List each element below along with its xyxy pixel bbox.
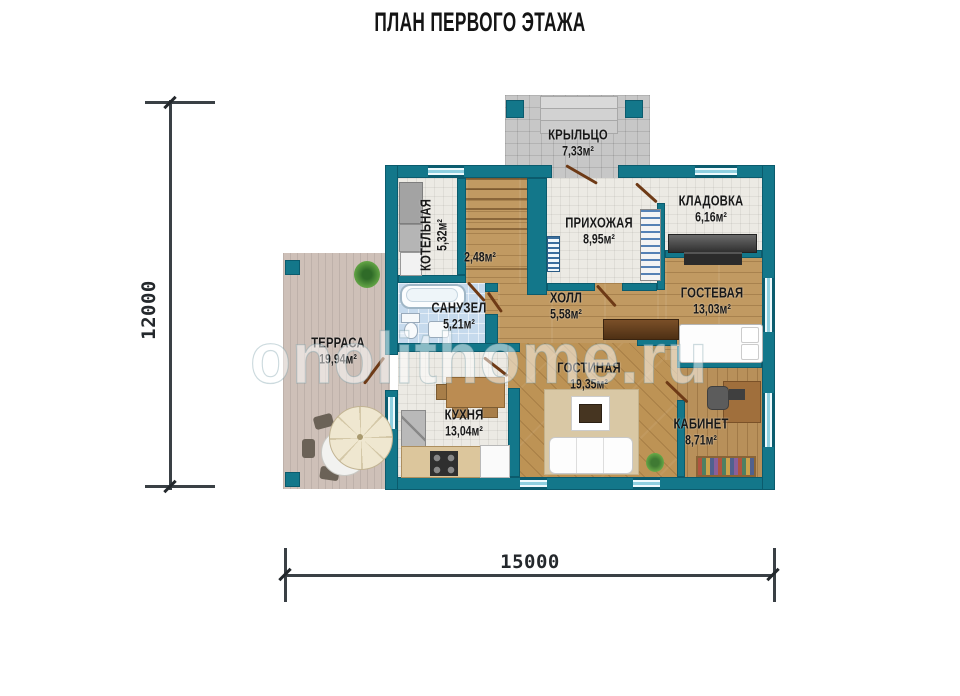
porch-pillar-right	[625, 100, 643, 118]
room-name: КАБИНЕТ	[673, 416, 728, 432]
dim-line-vertical	[169, 100, 172, 490]
room-name: КРЫЛЬЦО	[548, 127, 608, 143]
wall-top-left	[385, 165, 552, 178]
office-laptop	[729, 389, 745, 400]
kitchen-stove	[430, 451, 458, 476]
wall-boiler-bathroom	[398, 275, 466, 283]
room-name: КУХНЯ	[445, 407, 484, 423]
watermark-text: onolithome.ru	[250, 318, 708, 400]
wall-bathroom-a	[485, 283, 498, 292]
stair-landing-edge	[466, 268, 527, 270]
stair-treads	[466, 178, 527, 236]
kitchen-fridge	[401, 410, 426, 447]
guest-tv-stand	[684, 252, 742, 265]
window-living-right	[633, 478, 660, 489]
office-chair	[707, 386, 729, 410]
room-label-hall: ХОЛЛ 5,58м²	[550, 290, 582, 321]
terrace-chair	[302, 439, 315, 458]
window-storage	[695, 166, 737, 177]
window-office	[763, 393, 774, 447]
office-bookshelf	[696, 456, 756, 477]
porch-pillar-left	[506, 100, 524, 118]
room-area: 8,95м²	[565, 232, 632, 247]
room-name: САНУЗЕЛ	[432, 300, 487, 316]
terrace-post-bottom	[285, 472, 300, 487]
room-label-kitchen: КУХНЯ 13,04м²	[445, 407, 484, 438]
window-living-left	[520, 478, 547, 489]
guest-pillow	[741, 327, 759, 343]
room-area: 5,32м²	[435, 199, 450, 271]
dim-value-vertical: 12000	[138, 275, 162, 345]
room-label-porch: КРЫЛЬЦО 7,33м²	[548, 127, 608, 158]
room-label-stairs: 2,48м²	[464, 249, 496, 264]
living-tv	[579, 404, 602, 423]
room-area: 2,48м²	[464, 249, 496, 264]
room-area: 7,33м²	[548, 144, 608, 159]
terrace-umbrella-pole	[357, 434, 363, 440]
room-name: КЛАДОВКА	[679, 193, 744, 209]
room-label-hallway: ПРИХОЖАЯ 8,95м²	[565, 215, 632, 246]
room-label-storage: КЛАДОВКА 6,16м²	[679, 193, 744, 224]
kitchen-dishwasher	[480, 445, 510, 478]
guest-pillow	[741, 344, 759, 360]
dim-line-horizontal	[285, 574, 775, 577]
room-label-guest: ГОСТЕВАЯ 13,03м²	[681, 285, 744, 316]
terrace-post-top	[285, 260, 300, 275]
room-area: 13,04м²	[445, 424, 484, 439]
living-sofa	[549, 437, 633, 474]
hallway-radiator	[547, 236, 560, 272]
window-boiler	[428, 166, 464, 177]
room-name: ГОСТЕВАЯ	[681, 285, 744, 301]
room-name: ПРИХОЖАЯ	[565, 215, 632, 231]
room-name: ХОЛЛ	[550, 290, 582, 306]
room-label-office: КАБИНЕТ 8,71м²	[673, 416, 728, 447]
wall-bottom	[385, 477, 775, 490]
window-guest	[763, 278, 774, 332]
room-area: 8,71м²	[673, 433, 728, 448]
living-plant	[646, 453, 664, 472]
terrace-plant	[354, 261, 380, 288]
room-area: 6,16м²	[679, 210, 744, 225]
storage-dresser	[668, 234, 757, 253]
room-label-boiler: КОТЕЛЬНАЯ 5,32м²	[418, 199, 449, 271]
dim-tick-top	[145, 101, 215, 104]
kitchen-chair	[482, 407, 498, 418]
dim-tick-bottom	[145, 485, 215, 488]
room-area: 13,03м²	[681, 302, 744, 317]
wall-hallway-hall-b	[622, 283, 657, 291]
floor-plan-page: { "title": "ПЛАН ПЕРВОГО ЭТАЖА", "waterm…	[0, 0, 960, 696]
hallway-closet	[640, 209, 661, 281]
room-name: КОТЕЛЬНАЯ	[418, 199, 434, 271]
page-title: ПЛАН ПЕРВОГО ЭТАЖА	[374, 7, 585, 38]
dim-value-horizontal: 15000	[480, 551, 580, 573]
wall-stairs-hallway	[527, 178, 547, 295]
